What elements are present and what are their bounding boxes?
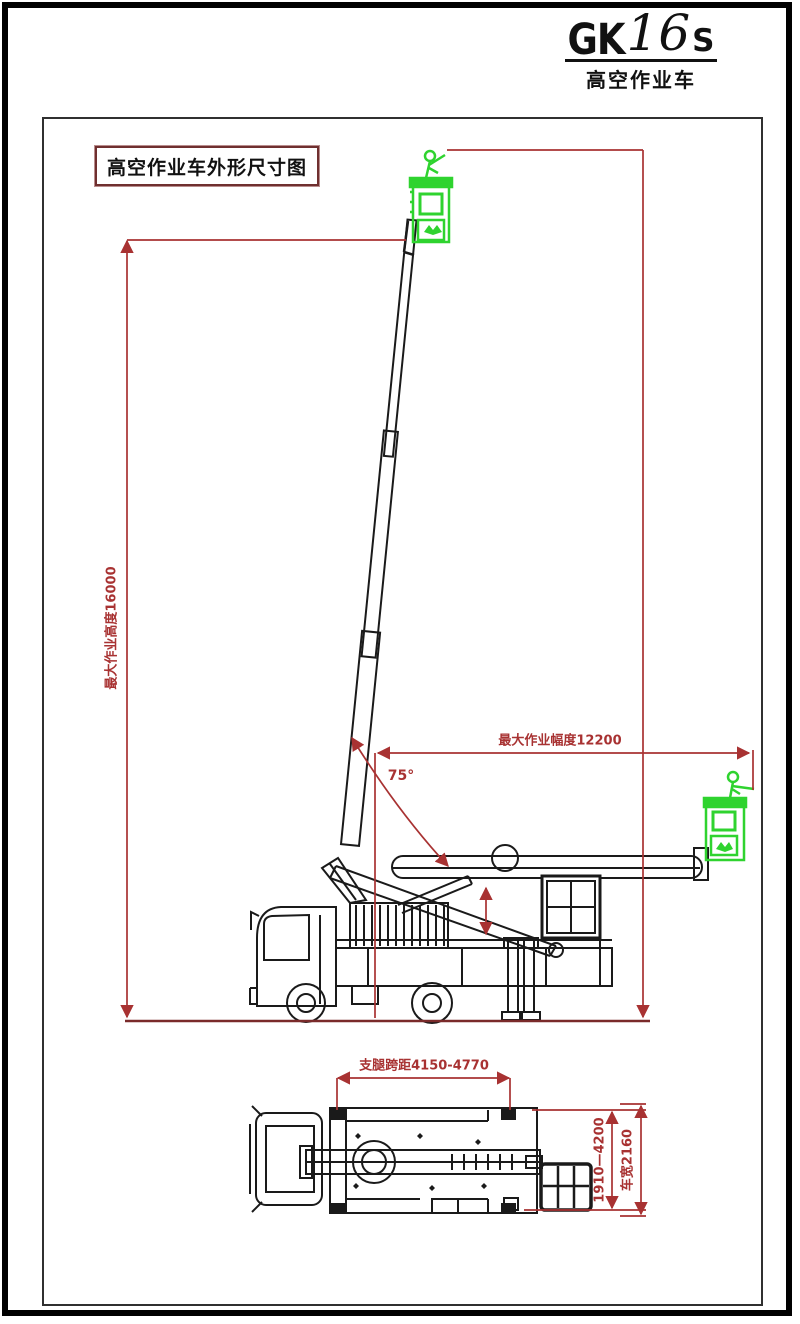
plan-basket (541, 1164, 591, 1210)
boom-turret (322, 858, 448, 948)
toolbox (542, 876, 600, 938)
plan-boom (300, 1146, 542, 1178)
side-view-dimensions (125, 150, 753, 1021)
side-view-linework (250, 220, 708, 1023)
basket-logo-icon (424, 225, 442, 235)
dim-height-label: 最大作业高度16000 (106, 566, 119, 689)
angle-arc (352, 738, 448, 866)
dim-width-label: 车宽2160 (622, 1129, 635, 1191)
dim-radius-label: 最大作业幅度12200 (498, 735, 621, 748)
basket-logo-icon (716, 842, 733, 852)
rear-wheel (412, 983, 452, 1023)
truck-chassis (336, 940, 612, 1004)
truck-cab (250, 907, 336, 1006)
plan-view-linework (250, 1106, 591, 1213)
outrigger-legs (502, 938, 540, 1020)
dim-outrigger-label: 支腿跨距4150-4770 (359, 1060, 489, 1073)
technical-drawing (0, 0, 800, 1324)
dim-track-label: 1910—4200 (594, 1117, 607, 1202)
plan-truck-body (330, 1108, 537, 1213)
outrigger-dimension-line (337, 1078, 510, 1110)
work-basket-stowed (704, 798, 746, 860)
drawing-sheet: GK 16 S 高空作业车 高空作业车外形尺寸图 (0, 0, 800, 1324)
boom-angle-label: 75° (388, 769, 414, 783)
telescopic-boom (341, 220, 417, 846)
